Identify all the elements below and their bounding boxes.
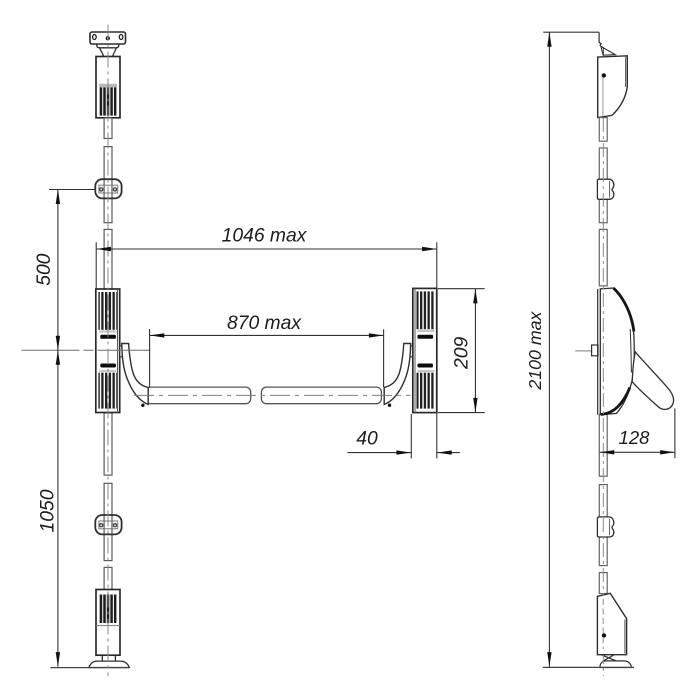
svg-text:2100 max: 2100 max — [525, 310, 545, 390]
svg-text:500: 500 — [34, 253, 55, 285]
svg-text:1046 max: 1046 max — [222, 226, 308, 247]
svg-text:128: 128 — [619, 427, 651, 448]
svg-text:870 max: 870 max — [227, 313, 302, 334]
svg-text:209: 209 — [452, 337, 473, 370]
svg-text:40: 40 — [356, 428, 378, 449]
svg-text:1050: 1050 — [38, 489, 59, 532]
